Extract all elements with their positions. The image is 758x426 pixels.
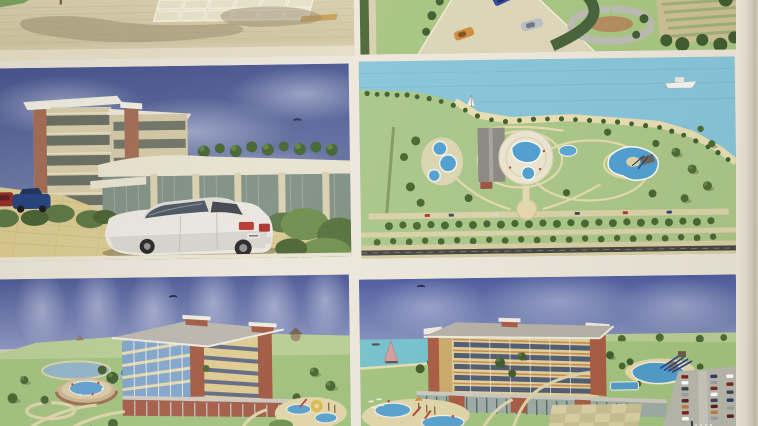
bird	[169, 295, 177, 297]
pond	[559, 145, 577, 156]
rendering-birdseye-sea-side	[0, 275, 351, 426]
hedge-strip	[360, 0, 370, 55]
bird	[293, 119, 301, 121]
tail-light-right	[259, 224, 270, 232]
rendering-master-plan	[359, 56, 738, 258]
small-boat	[372, 343, 380, 345]
brick-tower	[428, 333, 440, 395]
rendering-hotel-street-view	[0, 64, 351, 262]
lap-pool	[610, 382, 638, 390]
rendering-plaza-aerial	[0, 0, 354, 61]
brick-tower	[258, 331, 273, 400]
rendering-birdseye-land-side	[359, 274, 738, 426]
printed-renderings-photo	[0, 0, 758, 426]
paper-right-margin	[736, 0, 758, 426]
parking-drive	[698, 371, 708, 426]
side-path	[369, 0, 377, 54]
pole	[60, 0, 63, 5]
red-car	[0, 192, 14, 206]
pedestrian	[691, 421, 693, 426]
circular-pool-complex	[499, 130, 554, 185]
plaza-checker	[548, 404, 642, 426]
rendering-access-road	[360, 0, 737, 55]
tail-light-left	[239, 222, 254, 230]
